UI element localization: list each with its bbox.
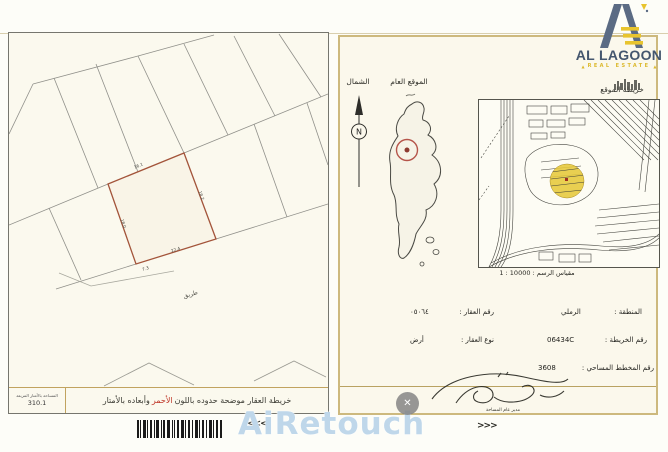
map-no-value: 06434C	[547, 336, 574, 344]
logo-subtitle-text: REAL ESTATE	[588, 63, 651, 69]
field-map-no: رقم الخريطة : 06434C	[547, 336, 647, 344]
field-property-no: رقم العقار : ٠٥٠٦٤	[410, 308, 494, 316]
property-no-value: ٠٥٠٦٤	[410, 308, 429, 316]
signature-caption: مدير عام المساحة	[448, 408, 558, 413]
property-no-label: رقم العقار :	[459, 308, 494, 316]
north-arrow-icon: N	[346, 95, 372, 190]
caption-pre: خريطة العقار موضحة حدوده باللون	[175, 396, 292, 405]
street-map-drawing	[479, 100, 659, 267]
logo-title: AL LAGOON	[570, 47, 668, 63]
district-label: المنطقة :	[614, 308, 642, 316]
road-label: طريق	[183, 289, 199, 300]
watermark: AiRetouch	[238, 406, 425, 442]
dim-corner: 7.3	[142, 265, 150, 272]
al-lagoon-logo: AL LAGOON ▲ REAL ESTATE ▲	[570, 0, 668, 96]
area-value: 310.1	[28, 399, 47, 407]
close-icon[interactable]: ✕	[396, 392, 419, 415]
field-district: المنطقة : الرملي	[561, 308, 642, 316]
field-type: نوع العقار : أرض	[410, 336, 494, 344]
country-overview-map	[370, 92, 475, 272]
triangle-icon: ▲	[582, 64, 585, 69]
chevrons-right: >>>	[477, 421, 497, 431]
district-value: الرملي	[561, 308, 581, 316]
site-map-panel	[478, 99, 660, 268]
scale-text: مقياس الرسم : 10000 : 1	[470, 269, 604, 277]
caption-red-word: الأحمر	[152, 396, 173, 405]
barcode	[137, 420, 223, 438]
highlighted-parcel	[108, 153, 216, 264]
parcel-map-drawing: 16.1 18.2 18.0 22.4 7.3 طريق	[9, 33, 328, 389]
dim-top: 16.1	[133, 161, 144, 169]
logo-subtitle: ▲ REAL ESTATE ▲	[570, 63, 668, 69]
scanned-property-document: 16.1 18.2 18.0 22.4 7.3 طريق المساحة بال…	[0, 0, 668, 452]
area-label: المساحة بالأمتار المربعة	[11, 394, 63, 399]
skyline-icon	[614, 78, 642, 90]
type-label: نوع العقار :	[461, 336, 494, 344]
general-location-label: الموقع العام	[378, 77, 440, 86]
area-cell: المساحة بالأمتار المربعة 310.1	[9, 388, 66, 413]
map-no-label: رقم الخريطة :	[605, 336, 647, 344]
north-label: الشمال	[342, 77, 374, 86]
compass-n: N	[356, 128, 362, 137]
plan-no-label: رقم المخطط المساحي :	[582, 364, 654, 372]
caption-post: وأبعاده بالأمتار	[103, 396, 150, 405]
type-value: أرض	[410, 336, 424, 344]
parcel-map-page: 16.1 18.2 18.0 22.4 7.3 طريق المساحة بال…	[8, 32, 329, 414]
logo-mark-icon	[597, 2, 649, 48]
triangle-icon: ▲	[653, 64, 656, 69]
